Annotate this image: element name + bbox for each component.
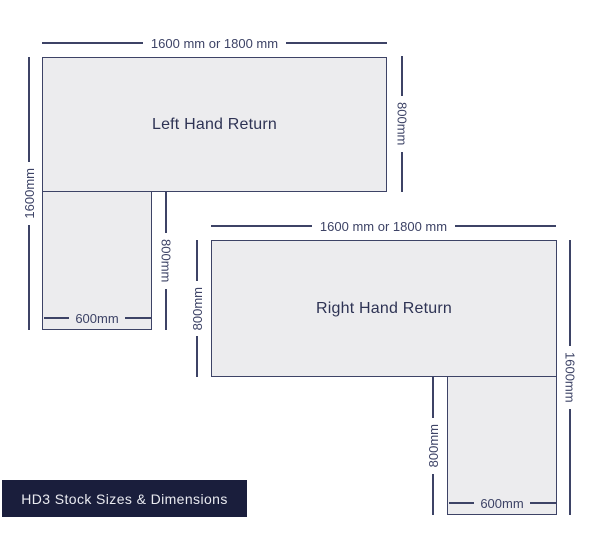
dimension-label: 800mm: [395, 102, 410, 145]
right-desk-return-surface: [447, 376, 557, 516]
left-desk-return-depth-dimension: 800mm: [158, 192, 174, 330]
dimension-label: 1600mm: [22, 168, 37, 219]
dimension-line: [44, 317, 70, 319]
right-desk-main-surface: Right Hand Return: [211, 240, 557, 377]
dimension-line: [401, 152, 403, 192]
dimension-line: [165, 192, 167, 233]
dimension-line: [165, 289, 167, 330]
dimension-line: [125, 317, 151, 319]
right-desk-top-dimension: 1600 mm or 1800 mm: [211, 219, 556, 233]
dimension-label: 600mm: [480, 496, 523, 511]
dimension-label: 600mm: [75, 311, 118, 326]
dimension-line: [401, 56, 403, 96]
dimension-line: [432, 474, 434, 515]
dimension-line: [432, 377, 434, 418]
dimension-label: 1600 mm or 1800 mm: [320, 219, 447, 234]
right-desk-return-depth-dimension: 800mm: [425, 377, 441, 515]
right-desk-right-dimension: 1600mm: [562, 240, 578, 515]
dimension-label: 800mm: [190, 287, 205, 330]
dimension-label: 800mm: [159, 239, 174, 282]
dimension-line: [569, 240, 571, 346]
dimension-label: 1600mm: [563, 352, 578, 403]
dimension-line: [28, 57, 30, 162]
title-badge: HD3 Stock Sizes & Dimensions: [2, 480, 247, 517]
dimension-line: [286, 42, 387, 44]
dimension-label: 800mm: [426, 424, 441, 467]
dimension-line: [569, 409, 571, 515]
left-desk-top-dimension: 1600 mm or 1800 mm: [42, 36, 387, 50]
left-desk-return-width-dimension: 600mm: [44, 311, 151, 325]
dimension-diagram: 1600 mm or 1800 mm Left Hand Return 600m…: [0, 0, 600, 550]
dimension-line: [449, 502, 475, 504]
dimension-line: [196, 240, 198, 281]
left-desk-right-dimension: 800mm: [394, 56, 410, 192]
dimension-label: 1600 mm or 1800 mm: [151, 36, 278, 51]
dimension-line: [28, 225, 30, 330]
left-desk-return-surface: [42, 191, 152, 331]
right-desk-left-dimension: 800mm: [189, 240, 205, 377]
dimension-line: [530, 502, 556, 504]
right-desk-label: Right Hand Return: [316, 300, 452, 318]
left-desk-left-dimension: 1600mm: [21, 57, 37, 330]
title-badge-label: HD3 Stock Sizes & Dimensions: [21, 491, 228, 507]
dimension-line: [42, 42, 143, 44]
dimension-line: [196, 336, 198, 377]
left-desk-main-surface: Left Hand Return: [42, 57, 387, 192]
right-desk-return-width-dimension: 600mm: [449, 496, 556, 510]
dimension-line: [455, 225, 556, 227]
dimension-line: [211, 225, 312, 227]
left-desk-label: Left Hand Return: [152, 116, 277, 134]
